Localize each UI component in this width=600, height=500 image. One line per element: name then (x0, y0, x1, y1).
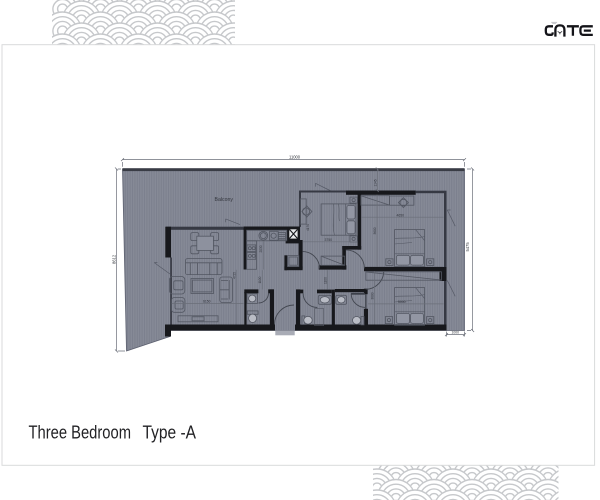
svg-text:3750: 3750 (325, 238, 333, 242)
svg-text:5475: 5475 (465, 242, 470, 252)
svg-text:1100: 1100 (258, 276, 262, 283)
svg-text:8612: 8612 (112, 254, 117, 264)
svg-text:4170: 4170 (306, 224, 310, 231)
svg-text:Balcony: Balcony (215, 197, 234, 203)
svg-text:Three Bedroom: Three Bedroom (29, 422, 132, 443)
svg-text:4650: 4650 (397, 213, 405, 217)
svg-text:3000: 3000 (371, 292, 375, 299)
svg-text:6150: 6150 (203, 300, 211, 304)
svg-text:1145: 1145 (373, 179, 377, 186)
svg-text:Type -A: Type -A (143, 422, 197, 443)
svg-text:5000: 5000 (398, 300, 406, 304)
svg-text:1100: 1100 (324, 277, 328, 284)
svg-text:4725: 4725 (232, 272, 236, 279)
svg-text:1000: 1000 (452, 331, 460, 335)
svg-text:3600: 3600 (373, 227, 377, 234)
svg-text:11000: 11000 (289, 155, 301, 160)
svg-text:2030: 2030 (259, 245, 263, 252)
